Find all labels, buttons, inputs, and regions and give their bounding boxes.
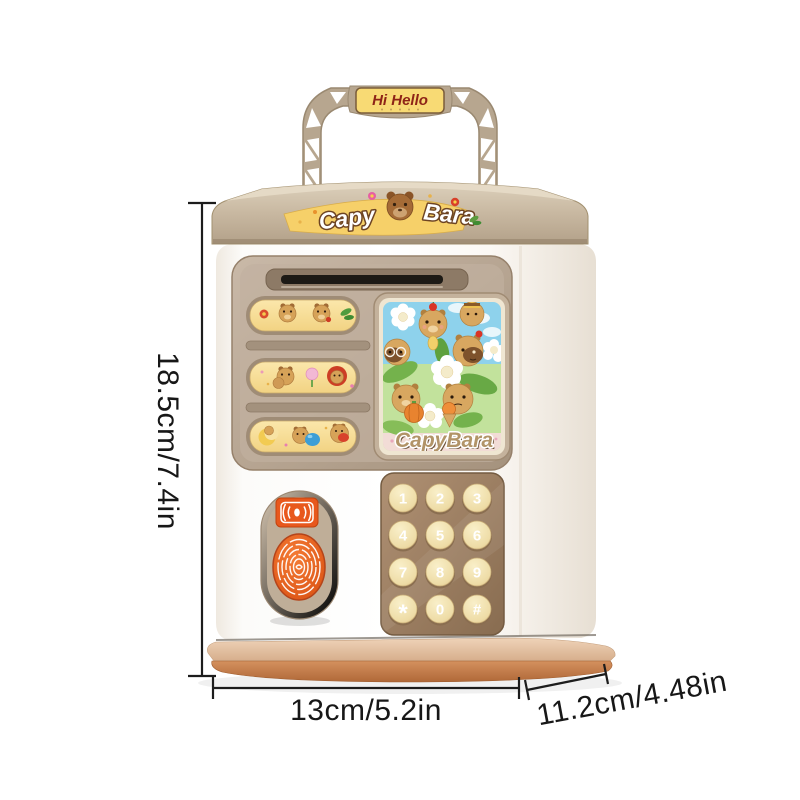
sticker-strip-3 [246,417,360,456]
panel-groove-1 [246,341,370,350]
svg-text:2: 2 [436,491,444,508]
carry-handle: Hi Hello [303,86,497,196]
panel-groove-2 [246,403,370,412]
display-screen: CapyBara CapyBara [374,293,510,460]
width-dimension-label: 13cm/5.2in [290,694,442,728]
front-panel: CapyBara CapyBara [232,256,512,470]
svg-text:9: 9 [473,565,481,582]
key-1: 1 [388,484,418,515]
svg-text:3: 3 [473,491,481,508]
lid: Capy Bara [212,182,588,244]
svg-text:1: 1 [399,491,407,508]
key-9: 9 [462,558,492,589]
coin-slot [266,269,468,290]
hi-hello-badge: Hi Hello [356,88,444,113]
body-edge-seam [519,246,522,636]
speaker-icon [276,498,318,527]
lid-word-right: Bara [422,198,476,229]
key-5: 5 [425,521,455,552]
sticker-strip-2 [246,358,360,397]
fingerprint-icon [273,534,325,600]
svg-text:#: # [473,602,482,619]
key-6: 6 [462,521,492,552]
keypad: 1 2 3 4 5 6 7 8 9 * 0 # [381,473,504,635]
svg-text:0: 0 [436,602,444,619]
svg-text:*: * [398,600,408,627]
sticker-strip-1 [246,296,360,335]
screen-artwork: CapyBara CapyBara [379,300,505,454]
key-2: 2 [425,484,455,515]
fingerprint-module [261,491,338,626]
badge-label: Hi Hello [372,92,428,109]
key-0: 0 [425,595,455,626]
key-hash: # [462,595,492,626]
height-dimension-line [188,203,216,676]
key-4: 4 [388,521,418,552]
key-3: 3 [462,484,492,515]
lid-bottom-shadow [213,239,587,244]
height-dimension-label: 18.5cm/7.4in [150,352,184,530]
svg-text:7: 7 [399,565,407,582]
key-8: 8 [425,558,455,589]
lid-capybara-icon [387,192,414,221]
screen-caption: CapyBara [395,429,493,452]
svg-text:6: 6 [473,528,481,545]
svg-text:5: 5 [436,528,444,545]
product-photo: Hi Hello Capy Bara [0,0,800,800]
base-plinth [207,635,615,682]
svg-text:8: 8 [436,565,444,582]
svg-text:4: 4 [399,528,408,545]
key-7: 7 [388,558,418,589]
